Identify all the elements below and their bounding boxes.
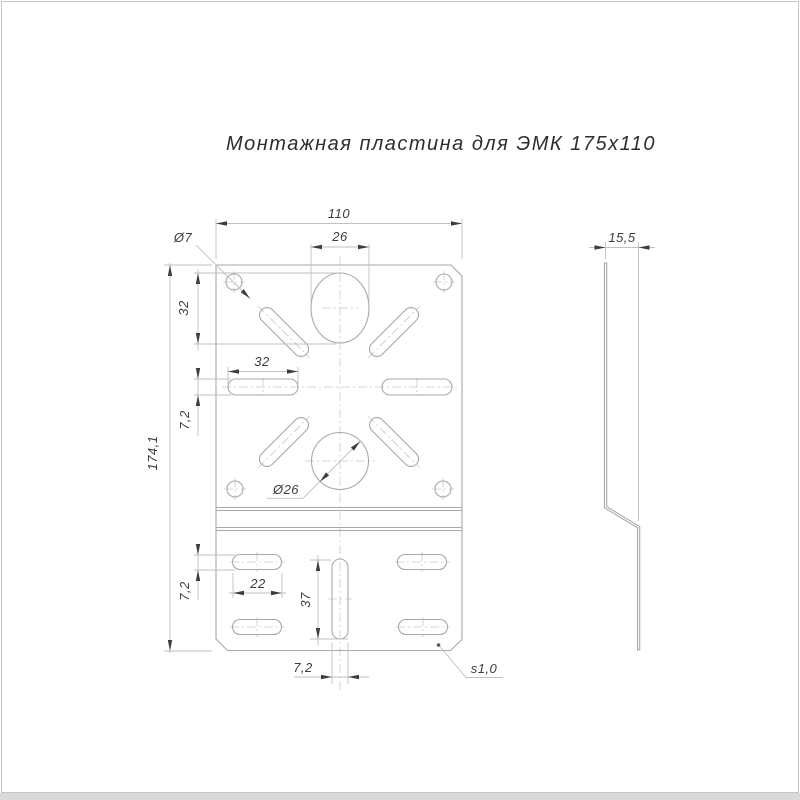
dim-label-oval-width: 26 — [331, 229, 348, 244]
arrow-right — [358, 245, 369, 249]
dim-label-plate-height: 174,1 — [145, 435, 160, 470]
dim-lines — [589, 242, 655, 521]
bend-lines — [216, 508, 462, 531]
arrow-left — [311, 245, 322, 249]
arrow-bottom — [196, 570, 200, 581]
arrow-bottom — [316, 628, 320, 639]
dimension-thickness: s1,0 — [437, 643, 503, 677]
dim-label-oval-height: 32 — [176, 300, 191, 316]
dim-label-bend-offset: 15,5 — [608, 230, 636, 245]
dim-lines — [310, 555, 348, 645]
arrow — [241, 289, 252, 300]
centerlines — [222, 256, 458, 692]
arrow-left — [216, 221, 227, 225]
dim-label-upper-slot-width: 7,2 — [177, 410, 192, 430]
technical-drawing: Монтажная пластина для ЭМК 175х110 — [0, 0, 800, 800]
centerline-marks — [222, 256, 458, 692]
arrow-right — [451, 221, 462, 225]
arrow-top — [196, 544, 200, 555]
dim-label-thickness: s1,0 — [471, 661, 498, 676]
dim-label-lower-slot-length: 22 — [249, 576, 266, 591]
dim-label-lower-slot-width: 7,2 — [177, 581, 192, 601]
dim-label-center-hole: Ø26 — [272, 482, 299, 497]
dim-lines — [194, 269, 336, 350]
dim-label-vslot-height: 37 — [298, 592, 313, 608]
arrow-right — [639, 245, 650, 249]
page-frame — [2, 2, 799, 793]
arrow-left — [233, 591, 244, 595]
drawing-page: Монтажная пластина для ЭМК 175х110 — [0, 0, 800, 800]
dimension-oval-height: 32 — [176, 269, 336, 350]
arrow-top — [196, 368, 200, 379]
dim-lines — [194, 544, 235, 600]
dimension-bend-offset: 15,5 — [589, 230, 655, 521]
side-view: 15,5 — [589, 230, 655, 650]
arrow-bottom — [196, 333, 200, 344]
dimension-vslot-height: 37 — [298, 555, 348, 645]
dim-lines — [194, 368, 231, 436]
leader-line — [196, 245, 250, 299]
arrow-left — [595, 245, 606, 249]
arrow-upper — [351, 440, 362, 451]
side-profile — [605, 263, 640, 650]
arrow-top — [196, 273, 200, 284]
arrow-left — [228, 369, 239, 373]
arrow-top — [168, 265, 172, 276]
dimension-lower-slot-width: 7,2 — [177, 544, 235, 601]
dim-label-plate-width: 110 — [328, 206, 350, 221]
arrow-bottom — [168, 640, 172, 651]
drawing-title: Монтажная пластина для ЭМК 175х110 — [226, 133, 656, 155]
dimension-lower-slot-length: 22 — [229, 573, 286, 598]
dimension-upper-slot-width: 7,2 — [177, 368, 231, 436]
page-bottom-strip — [0, 793, 800, 800]
leader-dot — [437, 643, 441, 647]
dim-label-vslot-width: 7,2 — [293, 660, 313, 675]
dim-label-upper-slot-length: 32 — [254, 354, 270, 369]
arrow-left — [321, 675, 332, 679]
arrow-right — [287, 369, 298, 373]
arrow-bottom — [196, 395, 200, 406]
arrow-top — [316, 560, 320, 571]
arrow-lower — [318, 472, 329, 483]
dim-label-corner-hole: Ø7 — [173, 230, 193, 245]
front-view — [216, 256, 462, 692]
arrow-right — [271, 591, 282, 595]
arrow-right — [348, 675, 359, 679]
dimension-vslot-width: 7,2 — [293, 643, 369, 684]
